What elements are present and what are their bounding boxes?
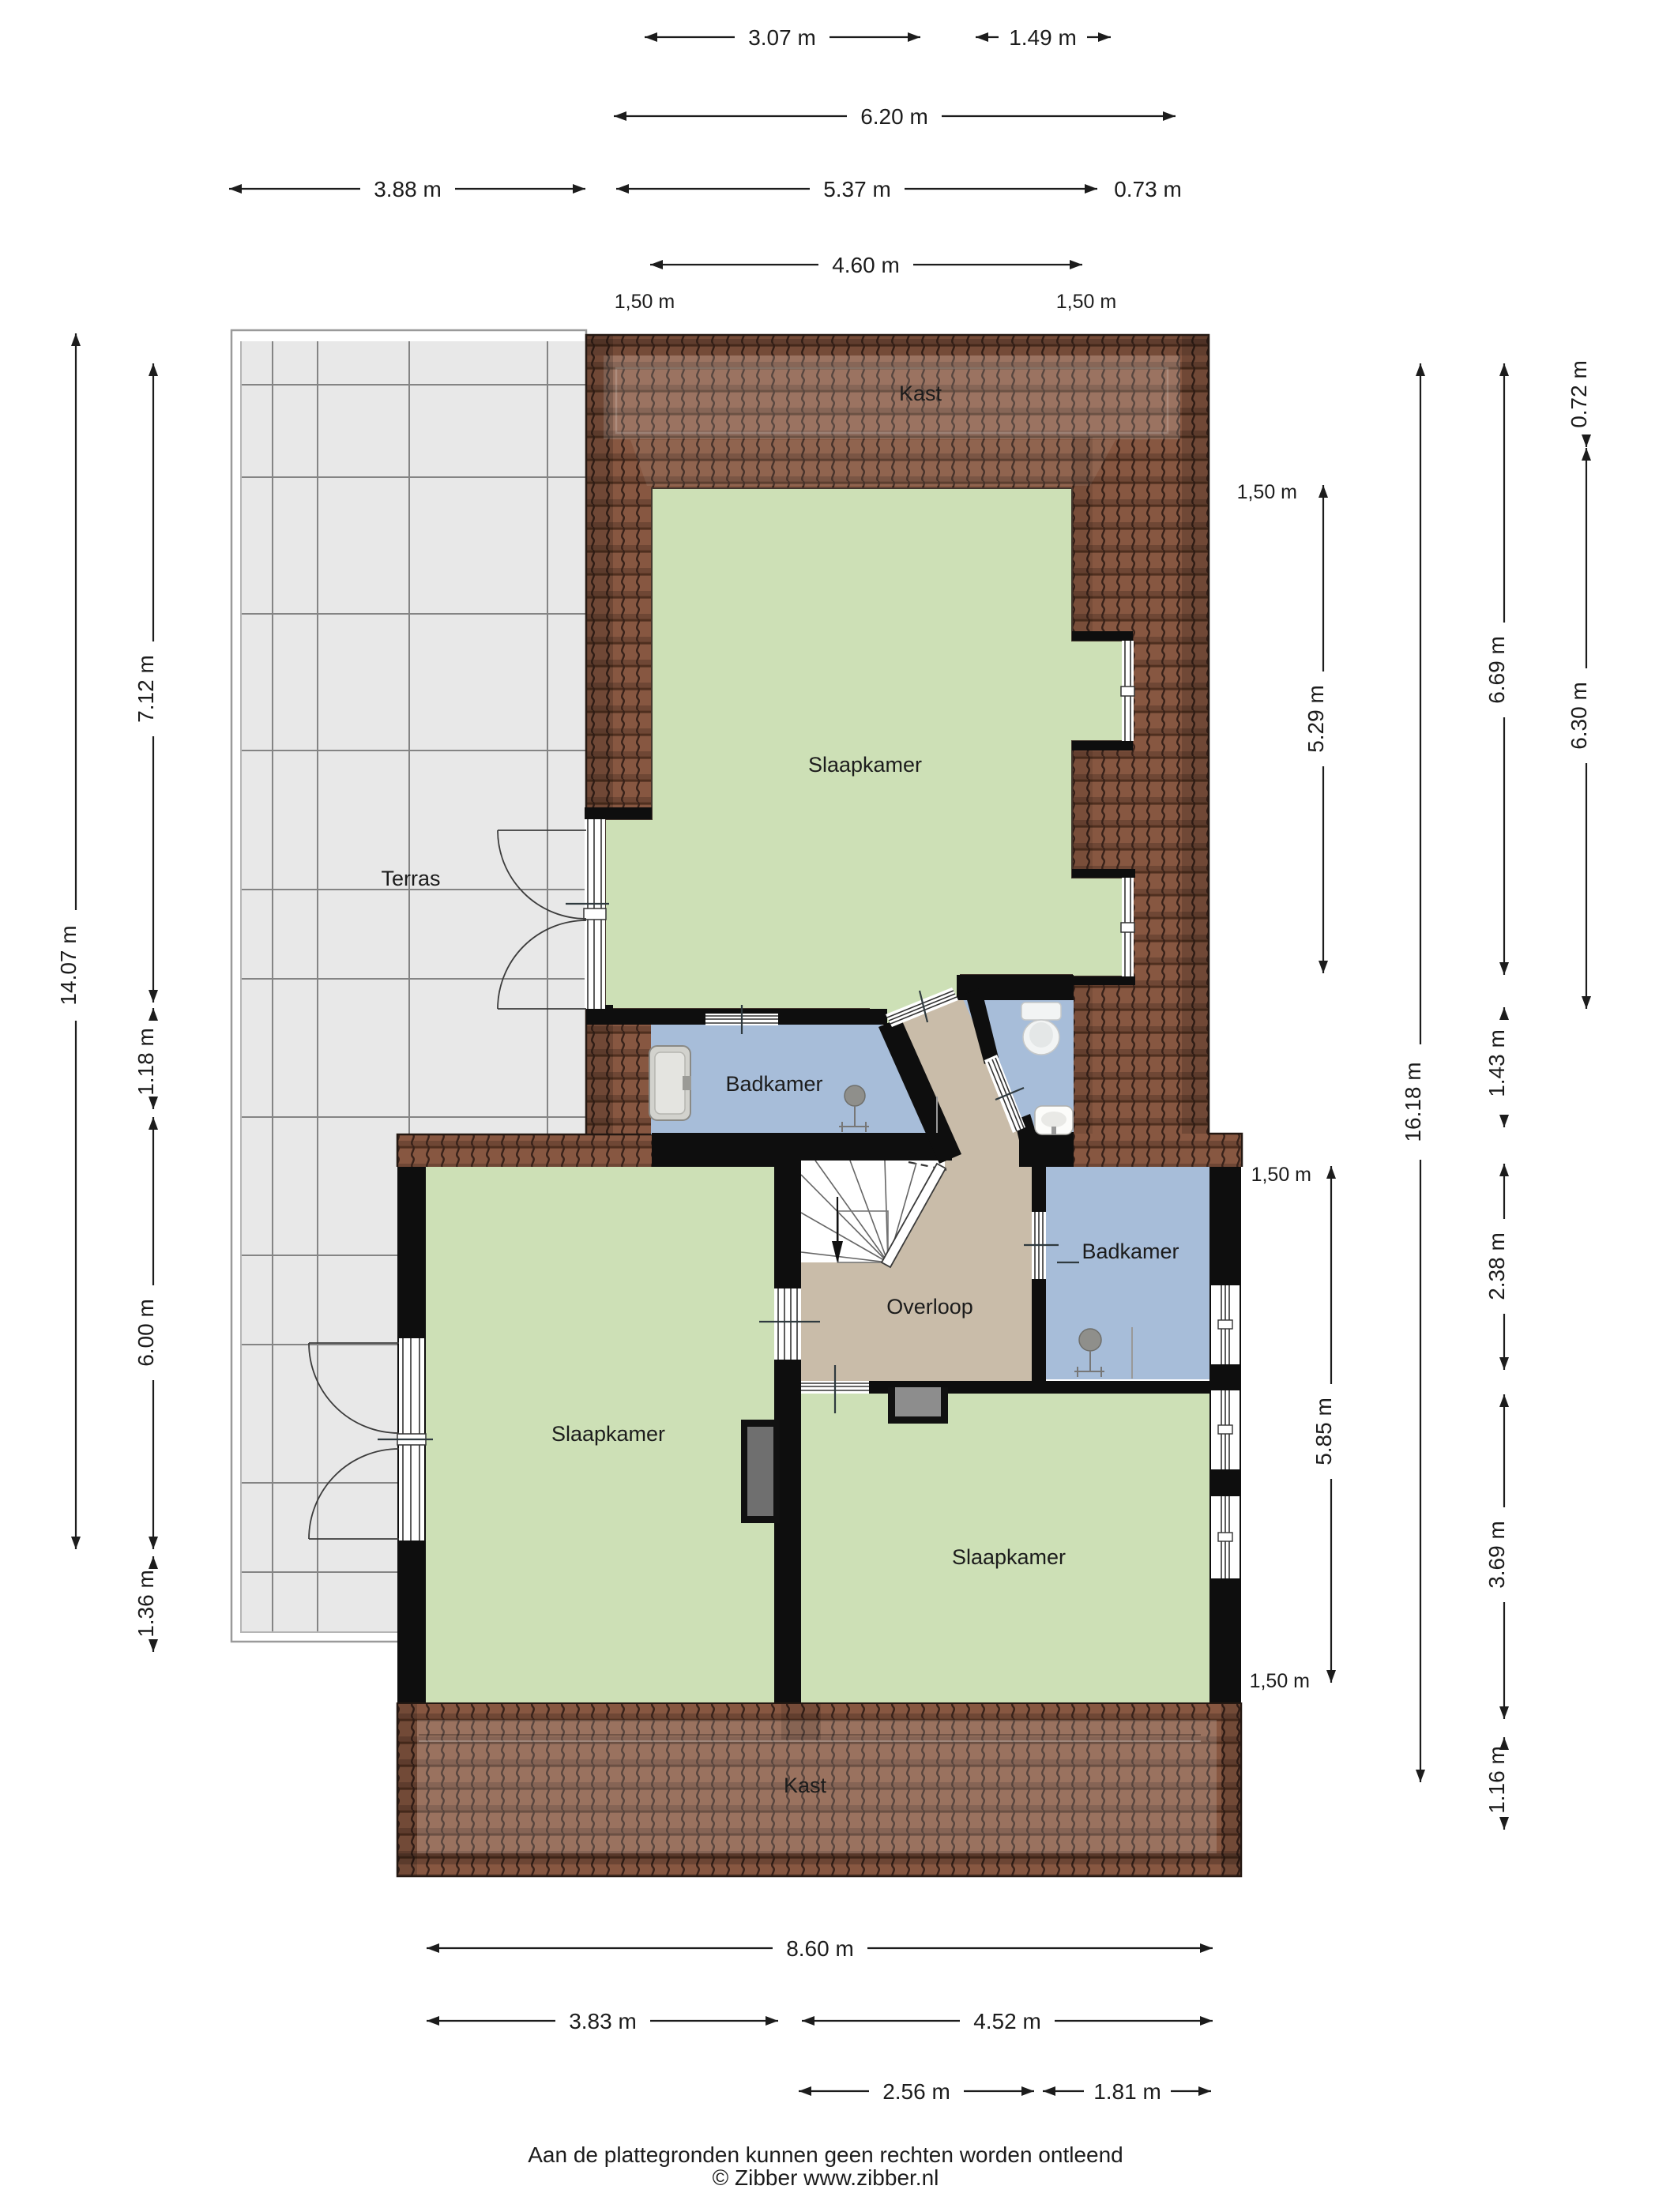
svg-text:1.18 m: 1.18 m: [134, 1028, 158, 1096]
svg-text:3.83 m: 3.83 m: [569, 2009, 637, 2033]
svg-text:3.69 m: 3.69 m: [1484, 1521, 1509, 1589]
svg-text:1.43 m: 1.43 m: [1484, 1029, 1509, 1097]
svg-text:Badkamer: Badkamer: [725, 1072, 822, 1096]
svg-text:Terras: Terras: [381, 867, 440, 890]
svg-text:Slaapkamer: Slaapkamer: [551, 1422, 665, 1446]
svg-text:Overloop: Overloop: [886, 1295, 973, 1319]
svg-text:0.72 m: 0.72 m: [1567, 360, 1591, 428]
svg-text:6.00 m: 6.00 m: [134, 1299, 158, 1367]
svg-text:1.49 m: 1.49 m: [1009, 25, 1077, 50]
svg-text:1.36 m: 1.36 m: [134, 1570, 158, 1638]
svg-text:Slaapkamer: Slaapkamer: [952, 1545, 1066, 1569]
svg-text:1,50 m: 1,50 m: [1056, 291, 1116, 313]
svg-text:Kast: Kast: [899, 382, 942, 405]
svg-text:2.56 m: 2.56 m: [882, 2079, 950, 2104]
svg-text:14.07 m: 14.07 m: [56, 925, 81, 1005]
svg-text:Aan de plattegronden kunnen ge: Aan de plattegronden kunnen geen rechten…: [528, 2142, 1123, 2167]
svg-text:4.52 m: 4.52 m: [973, 2009, 1041, 2033]
svg-text:Badkamer: Badkamer: [1082, 1240, 1179, 1263]
svg-text:3.88 m: 3.88 m: [374, 177, 442, 201]
svg-text:1,50 m: 1,50 m: [1251, 1164, 1311, 1186]
svg-text:5.85 m: 5.85 m: [1311, 1398, 1336, 1465]
svg-text:8.60 m: 8.60 m: [786, 1936, 854, 1961]
svg-text:4.60 m: 4.60 m: [832, 253, 900, 277]
svg-text:Slaapkamer: Slaapkamer: [808, 753, 922, 777]
svg-text:6.30 m: 6.30 m: [1567, 682, 1591, 750]
svg-text:7.12 m: 7.12 m: [134, 655, 158, 723]
svg-text:6.69 m: 6.69 m: [1484, 636, 1509, 704]
svg-text:1,50 m: 1,50 m: [1250, 1670, 1310, 1692]
svg-text:6.20 m: 6.20 m: [860, 104, 928, 129]
svg-text:Kast: Kast: [784, 1774, 827, 1797]
svg-text:0.73 m: 0.73 m: [1114, 177, 1182, 201]
svg-text:2.38 m: 2.38 m: [1484, 1232, 1509, 1300]
svg-text:1.81 m: 1.81 m: [1093, 2079, 1161, 2104]
svg-text:1,50 m: 1,50 m: [1237, 481, 1297, 503]
svg-text:1,50 m: 1,50 m: [615, 291, 675, 313]
svg-text:3.07 m: 3.07 m: [748, 25, 816, 50]
svg-text:1.16 m: 1.16 m: [1484, 1746, 1509, 1814]
svg-text:16.18 m: 16.18 m: [1401, 1062, 1425, 1142]
svg-text:© Zibber www.zibber.nl: © Zibber www.zibber.nl: [713, 2165, 939, 2190]
svg-text:5.37 m: 5.37 m: [823, 177, 891, 201]
svg-text:5.29 m: 5.29 m: [1303, 685, 1328, 753]
